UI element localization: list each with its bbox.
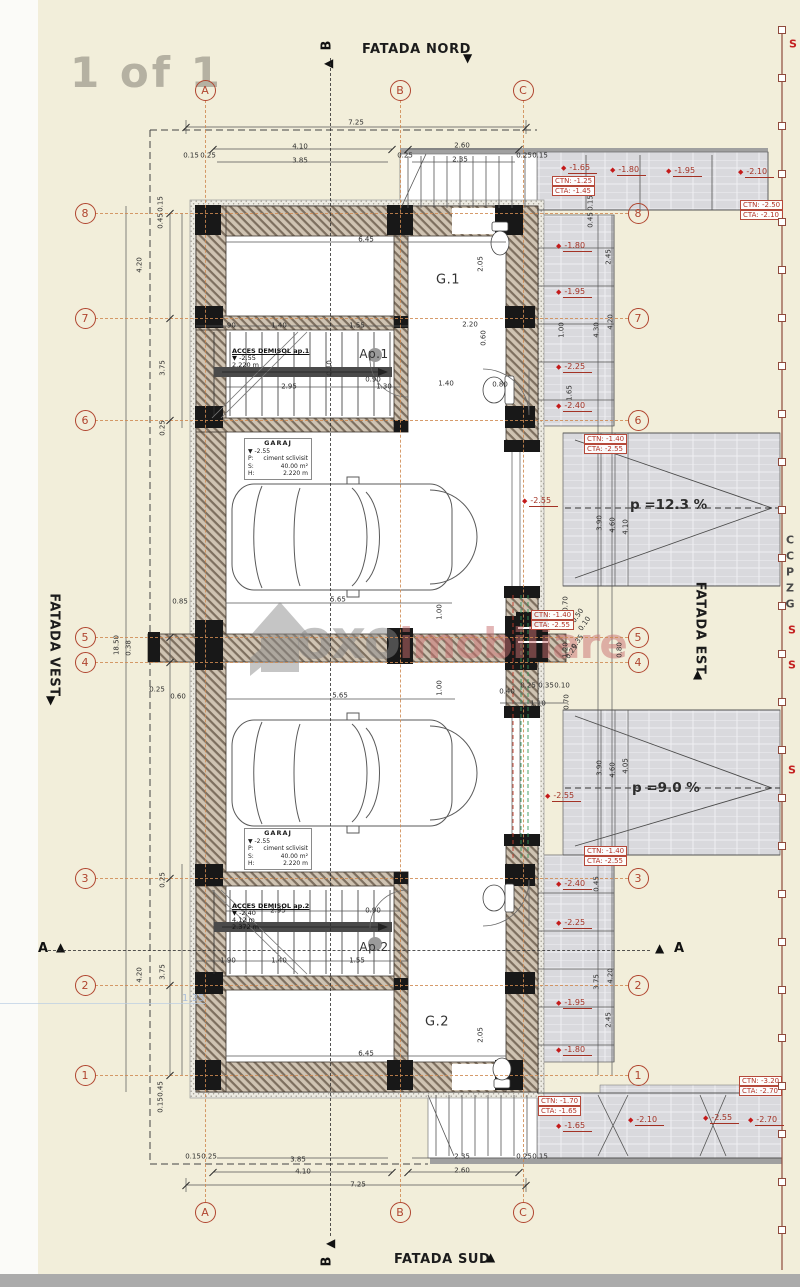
edge-text-fragment: S — [788, 659, 796, 672]
edge-text-fragment: C — [786, 550, 794, 563]
elevation-marker: ◆-1.80 — [610, 166, 646, 174]
grid-bubble-C: C — [513, 80, 534, 101]
dim-tick — [182, 1181, 190, 1189]
dimension-label: 0.45 — [594, 876, 601, 892]
elevation-marker: ◆-1.95 — [556, 999, 592, 1007]
facade-south-label: FATADA SUD — [394, 1252, 490, 1267]
stair-access-line: 2.220 m — [232, 362, 309, 369]
section-b-label-bottom: B — [319, 1257, 334, 1267]
cta-value: CTA: -2.70 — [739, 1086, 782, 1096]
grid-row-line-6 — [95, 420, 628, 421]
facade-east-label: FATADA EST — [693, 582, 708, 675]
grid-row-line-2 — [95, 985, 628, 986]
elevation-diamond-icon: ◆ — [556, 1122, 561, 1130]
room-label-g2: G.2 — [425, 1015, 449, 1030]
dimension-label: 3.75 — [160, 360, 167, 376]
elevation-marker: ◆-2.10 — [738, 168, 774, 176]
elevation-value: -2.40 — [563, 401, 592, 412]
elevation-marker: ◆-2.70 — [748, 1116, 784, 1124]
fence-post — [778, 650, 786, 658]
section-a-label-left: A — [38, 941, 48, 956]
grid-row-line-1 — [95, 1075, 628, 1076]
garage-level: ▼ -2.55 — [248, 838, 308, 846]
elevation-diamond-icon: ◆ — [556, 880, 561, 888]
dimension-label: 1.40 — [438, 381, 454, 388]
edge-text-fragment: S — [788, 764, 796, 777]
ctn-value: CTN: -1.40 — [531, 610, 574, 620]
dimension-label: 0.25 — [516, 1154, 532, 1161]
room-label-ap2: Ap.2 — [359, 940, 388, 954]
dimension-label: 3.75 — [160, 964, 167, 980]
dimension-label: 18.50 — [114, 635, 121, 655]
dimension-label: 1.55 — [349, 323, 365, 330]
elevation-value: -1.80 — [617, 165, 646, 176]
cta-value: CTA: -2.55 — [584, 444, 627, 454]
dimension-label: 2.05 — [478, 1027, 485, 1043]
dimension-label: 1.65 — [567, 385, 574, 401]
edge-text-fragment: G — [785, 598, 794, 611]
dimension-label: 0.25 — [516, 153, 532, 160]
elevation-marker: ◆-1.95 — [666, 167, 702, 175]
dimension-label: 0.35 — [538, 683, 554, 690]
dimension-label: 0.45 — [158, 213, 165, 229]
ctn-value: CTN: -1.25 — [552, 176, 595, 186]
elevation-diamond-icon: ◆ — [628, 1116, 633, 1124]
facade-west-arrow: ▼ — [46, 694, 55, 706]
cta-value: CTA: -2.10 — [740, 210, 783, 220]
dimension-label: 0.40 — [499, 689, 515, 696]
garage-info-box: GARAJ▼ -2.55P:ciment sclivisitS:40.00 m²… — [244, 828, 312, 870]
dimension-label: 0.25 — [200, 153, 216, 160]
garage-spec-row: S:40.00 m² — [248, 463, 308, 471]
cta-value: CTA: -1.65 — [538, 1106, 581, 1116]
fence-post — [778, 74, 786, 82]
dimension-label: 1.90 — [220, 323, 236, 330]
facade-west-label: FATADA VEST — [47, 593, 62, 697]
elevation-value: -1.95 — [563, 998, 592, 1009]
dimension-label: 4.30 — [594, 322, 601, 338]
ctn-value: CTN: -3.20 — [739, 1076, 782, 1086]
fence-post — [778, 218, 786, 226]
dimension-label: 1.10 — [530, 701, 546, 708]
facade-south-arrow: ▲ — [486, 1251, 495, 1263]
grid-col-line-A — [205, 100, 206, 1202]
section-a-label-right: A — [674, 941, 684, 956]
grid-bubble-1: 1 — [75, 1065, 96, 1086]
stair-access-line: 2.372 m — [232, 924, 309, 931]
grid-row-line-5 — [95, 637, 628, 638]
dimension-label: 2.60 — [454, 1168, 470, 1175]
section-a-arrow-left: ▲ — [56, 941, 65, 953]
elevation-diamond-icon: ◆ — [738, 168, 743, 176]
elevation-value: -1.95 — [563, 287, 592, 298]
grid-bubble-4: 4 — [628, 652, 649, 673]
elevation-value: -2.55 — [710, 1113, 739, 1124]
grid-row-line-7 — [95, 318, 628, 319]
elevation-marker: ◆-2.10 — [628, 1116, 664, 1124]
dimension-label: 3.85 — [290, 1157, 306, 1164]
dimension-label: 0.45 — [158, 1081, 165, 1097]
elevation-value: -2.10 — [635, 1115, 664, 1126]
elevation-value: -2.10 — [745, 167, 774, 178]
level-box: CTN: -3.20CTA: -2.70 — [739, 1076, 782, 1096]
dimension-label: 4.05 — [623, 758, 630, 774]
elevation-diamond-icon: ◆ — [561, 164, 566, 172]
garage-info-box: GARAJ▼ -2.55P:ciment sclivisitS:40.00 m²… — [244, 438, 312, 480]
garage-title: GARAJ — [248, 830, 308, 838]
grid-bubble-2: 2 — [628, 975, 649, 996]
elevation-marker: ◆-2.55 — [522, 497, 558, 505]
dim-tick — [404, 1168, 412, 1176]
dimension-label: 2.95 — [281, 384, 297, 391]
dimension-label: 3.85 — [292, 158, 308, 165]
fence-post — [778, 698, 786, 706]
grid-bubble-2: 2 — [75, 975, 96, 996]
dimension-label: 0.10 — [327, 360, 334, 376]
elevation-diamond-icon: ◆ — [522, 497, 527, 505]
grid-bubble-5: 5 — [628, 627, 649, 648]
grid-bubble-B: B — [390, 80, 411, 101]
grid-bubble-A: A — [195, 80, 216, 101]
dimension-label: 0.15 — [158, 1097, 165, 1113]
dimension-label: 2.45 — [606, 249, 613, 265]
dimension-label: 1.40 — [271, 323, 287, 330]
dimension-label: 1.55 — [349, 958, 365, 965]
dimension-label: 0.60 — [170, 694, 186, 701]
room-label-ap1: Ap.1 — [359, 347, 388, 361]
elevation-marker: ◆-1.95 — [556, 288, 592, 296]
grid-col-line-B — [400, 100, 401, 1202]
dimension-label: 0.15 — [183, 153, 199, 160]
garage-title: GARAJ — [248, 440, 308, 448]
elevation-diamond-icon: ◆ — [703, 1114, 708, 1122]
dimension-label: 0.25 — [160, 420, 167, 436]
dimension-label: 2.20 — [462, 322, 478, 329]
grid-bubble-1: 1 — [628, 1065, 649, 1086]
dim-tick — [388, 1168, 396, 1176]
grid-bubble-5: 5 — [75, 627, 96, 648]
dimension-label: 2.35 — [454, 1154, 470, 1161]
grid-bubble-6: 6 — [75, 410, 96, 431]
dimension-label: 0.10 — [554, 683, 570, 690]
fence-post — [778, 746, 786, 754]
dimension-label: 0.25 — [149, 687, 165, 694]
dimension-label: 3.75 — [594, 974, 601, 990]
elevation-value: -2.70 — [755, 1115, 784, 1126]
dimension-label: 0.25 — [201, 1154, 217, 1161]
elevation-value: -2.25 — [563, 918, 592, 929]
grid-bubble-B: B — [390, 1202, 411, 1223]
dimension-label: 1.00 — [437, 680, 444, 696]
fence-post — [778, 1178, 786, 1186]
elevation-diamond-icon: ◆ — [556, 363, 561, 371]
level-box: CTN: -1.25CTA: -1.45 — [552, 176, 595, 196]
facade-north-label: FATADA NORD — [362, 42, 471, 57]
fence-post — [778, 506, 786, 514]
stair-access-label: ACCES DEMISOL ap.2▼ -2.404.12 m2.372 m — [232, 903, 309, 931]
garage-spec-row: P:ciment sclivisit — [248, 455, 308, 463]
dimension-label: 4.10 — [623, 519, 630, 535]
dimension-label: 5.65 — [330, 597, 346, 604]
level-box: CTN: -1.40CTA: -2.55 — [531, 610, 574, 630]
cta-value: CTA: -2.55 — [531, 620, 574, 630]
dimension-label: 0.80 — [617, 642, 624, 658]
elevation-diamond-icon: ◆ — [556, 402, 561, 410]
dimension-label: 4.10 — [295, 1169, 311, 1176]
dimension-label: 0.15 — [532, 153, 548, 160]
garage-spec-row: P:ciment sclivisit — [248, 845, 308, 853]
section-b-label-top: B — [319, 41, 334, 51]
dimension-label: 1.00 — [437, 604, 444, 620]
dimension-label: 0.38 — [126, 640, 133, 656]
dimension-label: 0.25 — [520, 683, 536, 690]
elevation-diamond-icon: ◆ — [748, 1116, 753, 1124]
elevation-marker: ◆-2.40 — [556, 880, 592, 888]
elevation-value: -2.55 — [529, 496, 558, 507]
fence-post — [778, 362, 786, 370]
dimension-label: 4.20 — [137, 967, 144, 983]
elevation-diamond-icon: ◆ — [610, 166, 615, 174]
garage-level: ▼ -2.55 — [248, 448, 308, 456]
facade-east-arrow: ▲ — [693, 668, 702, 680]
edge-text-fragment: C — [786, 534, 794, 547]
elevation-value: -1.80 — [563, 1045, 592, 1056]
fence-post — [778, 170, 786, 178]
elevation-value: -1.65 — [568, 163, 597, 174]
dimension-label: 2.60 — [454, 143, 470, 150]
dimension-label: 1.40 — [271, 958, 287, 965]
fence-post — [778, 1226, 786, 1234]
dimension-label: 0.25 — [397, 153, 413, 160]
elevation-diamond-icon: ◆ — [556, 242, 561, 250]
ctn-value: CTN: -2.50 — [740, 200, 783, 210]
dimension-label: 7.25 — [350, 1182, 366, 1189]
dimension-label: 4.60 — [610, 517, 617, 533]
dimension-label: 0.80 — [492, 382, 508, 389]
grid-bubble-C: C — [513, 1202, 534, 1223]
elevation-marker: ◆-2.25 — [556, 363, 592, 371]
ramp-slope-label: p =12.3 % — [630, 497, 707, 513]
elevation-diamond-icon: ◆ — [666, 167, 671, 175]
grid-row-line-3 — [95, 878, 628, 879]
dimension-label: 0.85 — [172, 599, 188, 606]
fence-post — [778, 410, 786, 418]
level-box: CTN: -2.50CTA: -2.10 — [740, 200, 783, 220]
grid-bubble-7: 7 — [628, 308, 649, 329]
dimension-label: 0.70 — [564, 694, 571, 710]
cta-value: CTA: -1.45 — [552, 186, 595, 196]
room-label-g1: G.1 — [436, 273, 460, 288]
elevation-diamond-icon: ◆ — [556, 919, 561, 927]
grid-bubble-4: 4 — [75, 652, 96, 673]
fence-post — [778, 554, 786, 562]
dimension-label: 4.20 — [137, 257, 144, 273]
garage-spec-row: S:40.00 m² — [248, 853, 308, 861]
fence-post — [778, 794, 786, 802]
elevation-value: -2.25 — [563, 362, 592, 373]
dimension-label: 0.90 — [365, 377, 381, 384]
level-box: CTN: -1.40CTA: -2.55 — [584, 846, 627, 866]
edge-text-fragment: S — [788, 624, 796, 637]
edge-text-fragment: P — [786, 566, 794, 579]
dimension-label: 6.45 — [358, 237, 374, 244]
fence-post — [778, 1034, 786, 1042]
dimension-label: 0.90 — [365, 908, 381, 915]
floor-plan-sheet: 1 of 1 FATADA NORD ▼ FATADA SUD ▲ FATADA… — [0, 0, 800, 1287]
fence-post — [778, 1130, 786, 1138]
ctn-value: CTN: -1.70 — [538, 1096, 581, 1106]
dimension-label: 6.45 — [358, 1051, 374, 1058]
elevation-value: -1.80 — [563, 241, 592, 252]
dim-tick — [388, 145, 396, 153]
dimension-label: 1.30 — [376, 384, 392, 391]
dimension-label: 5.65 — [332, 693, 348, 700]
elevation-marker: ◆-1.80 — [556, 1046, 592, 1054]
ctn-value: CTN: -1.40 — [584, 434, 627, 444]
dimension-label: 4.20 — [608, 968, 615, 984]
grid-col-line-C — [523, 100, 524, 1202]
section-a-arrow-right: ▲ — [655, 942, 664, 954]
fence-post — [778, 890, 786, 898]
fence-post — [778, 122, 786, 130]
dimension-label: 1.90 — [220, 958, 236, 965]
grid-bubble-6: 6 — [628, 410, 649, 431]
facade-north-arrow: ▼ — [463, 52, 472, 64]
grid-row-line-4 — [95, 662, 628, 663]
stair-access-label: ACCES DEMISOL ap.1▼ -2.552.220 m — [232, 348, 309, 369]
fence-post — [778, 458, 786, 466]
dimension-label: 0.25 — [160, 872, 167, 888]
elevation-marker: ◆-2.55 — [545, 792, 581, 800]
fence-post — [778, 26, 786, 34]
grid-row-line-8 — [95, 213, 628, 214]
dimension-label: 4.20 — [608, 314, 615, 330]
level-box: CTN: -1.70CTA: -1.65 — [538, 1096, 581, 1116]
dimension-label: 1.00 — [559, 322, 566, 338]
garage-spec-row: H:2.220 m — [248, 860, 308, 868]
level-box: CTN: -1.40CTA: -2.55 — [584, 434, 627, 454]
elevation-diamond-icon: ◆ — [556, 999, 561, 1007]
elevation-marker: ◆-2.40 — [556, 402, 592, 410]
grid-bubble-8: 8 — [75, 203, 96, 224]
elevation-diamond-icon: ◆ — [545, 792, 550, 800]
dimension-label: 0.15 — [532, 1154, 548, 1161]
elevation-value: -1.65 — [563, 1121, 592, 1132]
fence-post — [778, 986, 786, 994]
grid-bubble-A: A — [195, 1202, 216, 1223]
grid-bubble-3: 3 — [75, 868, 96, 889]
elevation-marker: ◆-1.65 — [556, 1122, 592, 1130]
fence-post — [778, 938, 786, 946]
section-b-line — [330, 58, 331, 1236]
dimension-label: 4.60 — [610, 762, 617, 778]
annotation-overlay: 1 of 1 FATADA NORD ▼ FATADA SUD ▲ FATADA… — [0, 0, 800, 1287]
dimension-label: 3.90 — [597, 760, 604, 776]
dimension-label: 7.25 — [348, 120, 364, 127]
elevation-diamond-icon: ◆ — [556, 288, 561, 296]
dimension-label: 2.35 — [452, 157, 468, 164]
edge-text-fragment: S — [789, 38, 797, 51]
elevation-value: -2.40 — [563, 879, 592, 890]
dim-tick — [209, 1168, 217, 1176]
grid-bubble-7: 7 — [75, 308, 96, 329]
elevation-diamond-icon: ◆ — [556, 1046, 561, 1054]
dimension-label: 3.90 — [597, 515, 604, 531]
cta-value: CTA: -2.55 — [584, 856, 627, 866]
grid-bubble-8: 8 — [628, 203, 649, 224]
elevation-marker: ◆-1.65 — [561, 164, 597, 172]
grid-bubble-3: 3 — [628, 868, 649, 889]
dimension-label: 0.15 — [185, 1154, 201, 1161]
section-b-arrow-bottom: ◀ — [326, 1237, 335, 1249]
fence-post — [778, 1082, 786, 1090]
edge-text-fragment: Z — [786, 582, 794, 595]
elevation-value: -2.55 — [552, 791, 581, 802]
dim-tick — [182, 123, 190, 131]
elevation-marker: ◆-2.25 — [556, 919, 592, 927]
dimension-label: 2.45 — [606, 1012, 613, 1028]
dimension-label: 0.45 — [588, 212, 595, 228]
dimension-label: 2.05 — [478, 256, 485, 272]
dimension-label: 0.15 — [588, 195, 595, 211]
guide-line-blue — [0, 1003, 205, 1004]
fence-post — [778, 266, 786, 274]
fence-post — [778, 314, 786, 322]
section-a-line — [48, 950, 650, 951]
elevation-marker: ◆-1.80 — [556, 242, 592, 250]
fence-post — [778, 842, 786, 850]
dimension-label: 0.60 — [481, 330, 488, 346]
dimension-label: 0.15 — [158, 196, 165, 212]
ramp-slope-label: p =9.0 % — [632, 780, 700, 796]
ctn-value: CTN: -1.40 — [584, 846, 627, 856]
elevation-value: -1.95 — [673, 166, 702, 177]
dimension-label: 4.10 — [292, 144, 308, 151]
elevation-marker: ◆-2.55 — [703, 1114, 739, 1122]
garage-spec-row: H:2.220 m — [248, 470, 308, 478]
